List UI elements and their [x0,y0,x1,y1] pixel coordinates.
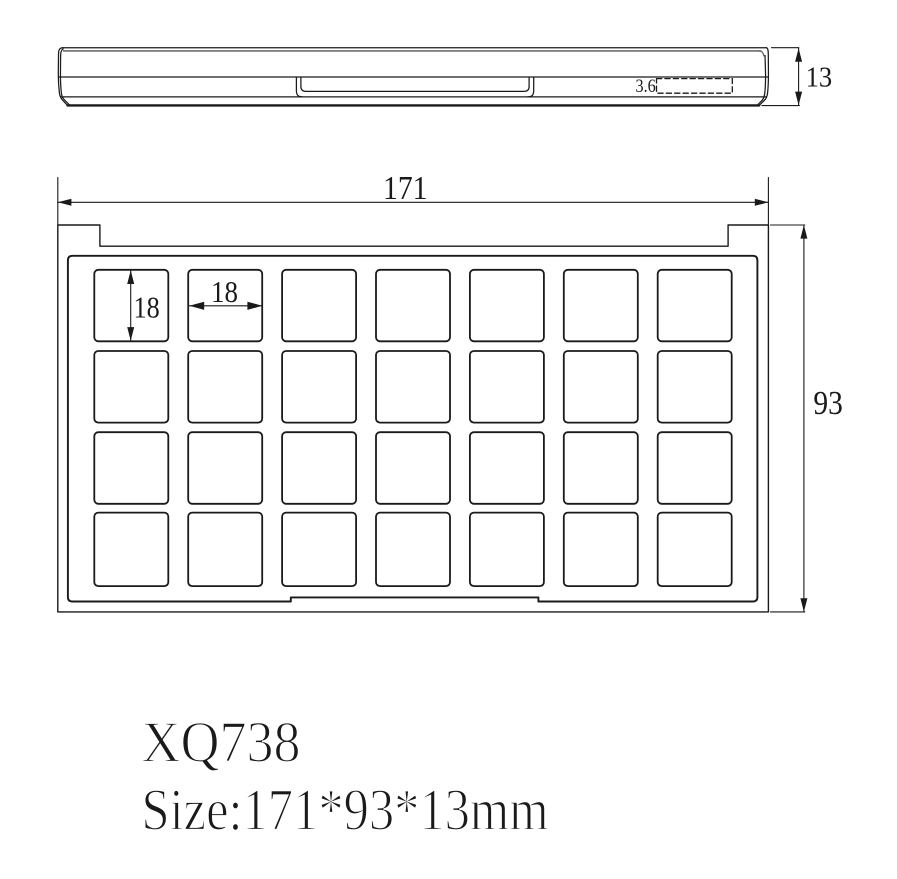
svg-text:93: 93 [813,385,843,422]
svg-text:Size:171*93*13mm: Size:171*93*13mm [142,776,549,842]
svg-text:13: 13 [806,62,833,93]
svg-text:171: 171 [383,170,428,207]
svg-text:18: 18 [134,290,160,325]
svg-text:18: 18 [211,274,238,309]
svg-text:3.6: 3.6 [636,76,656,97]
svg-text:XQ738: XQ738 [142,709,301,774]
